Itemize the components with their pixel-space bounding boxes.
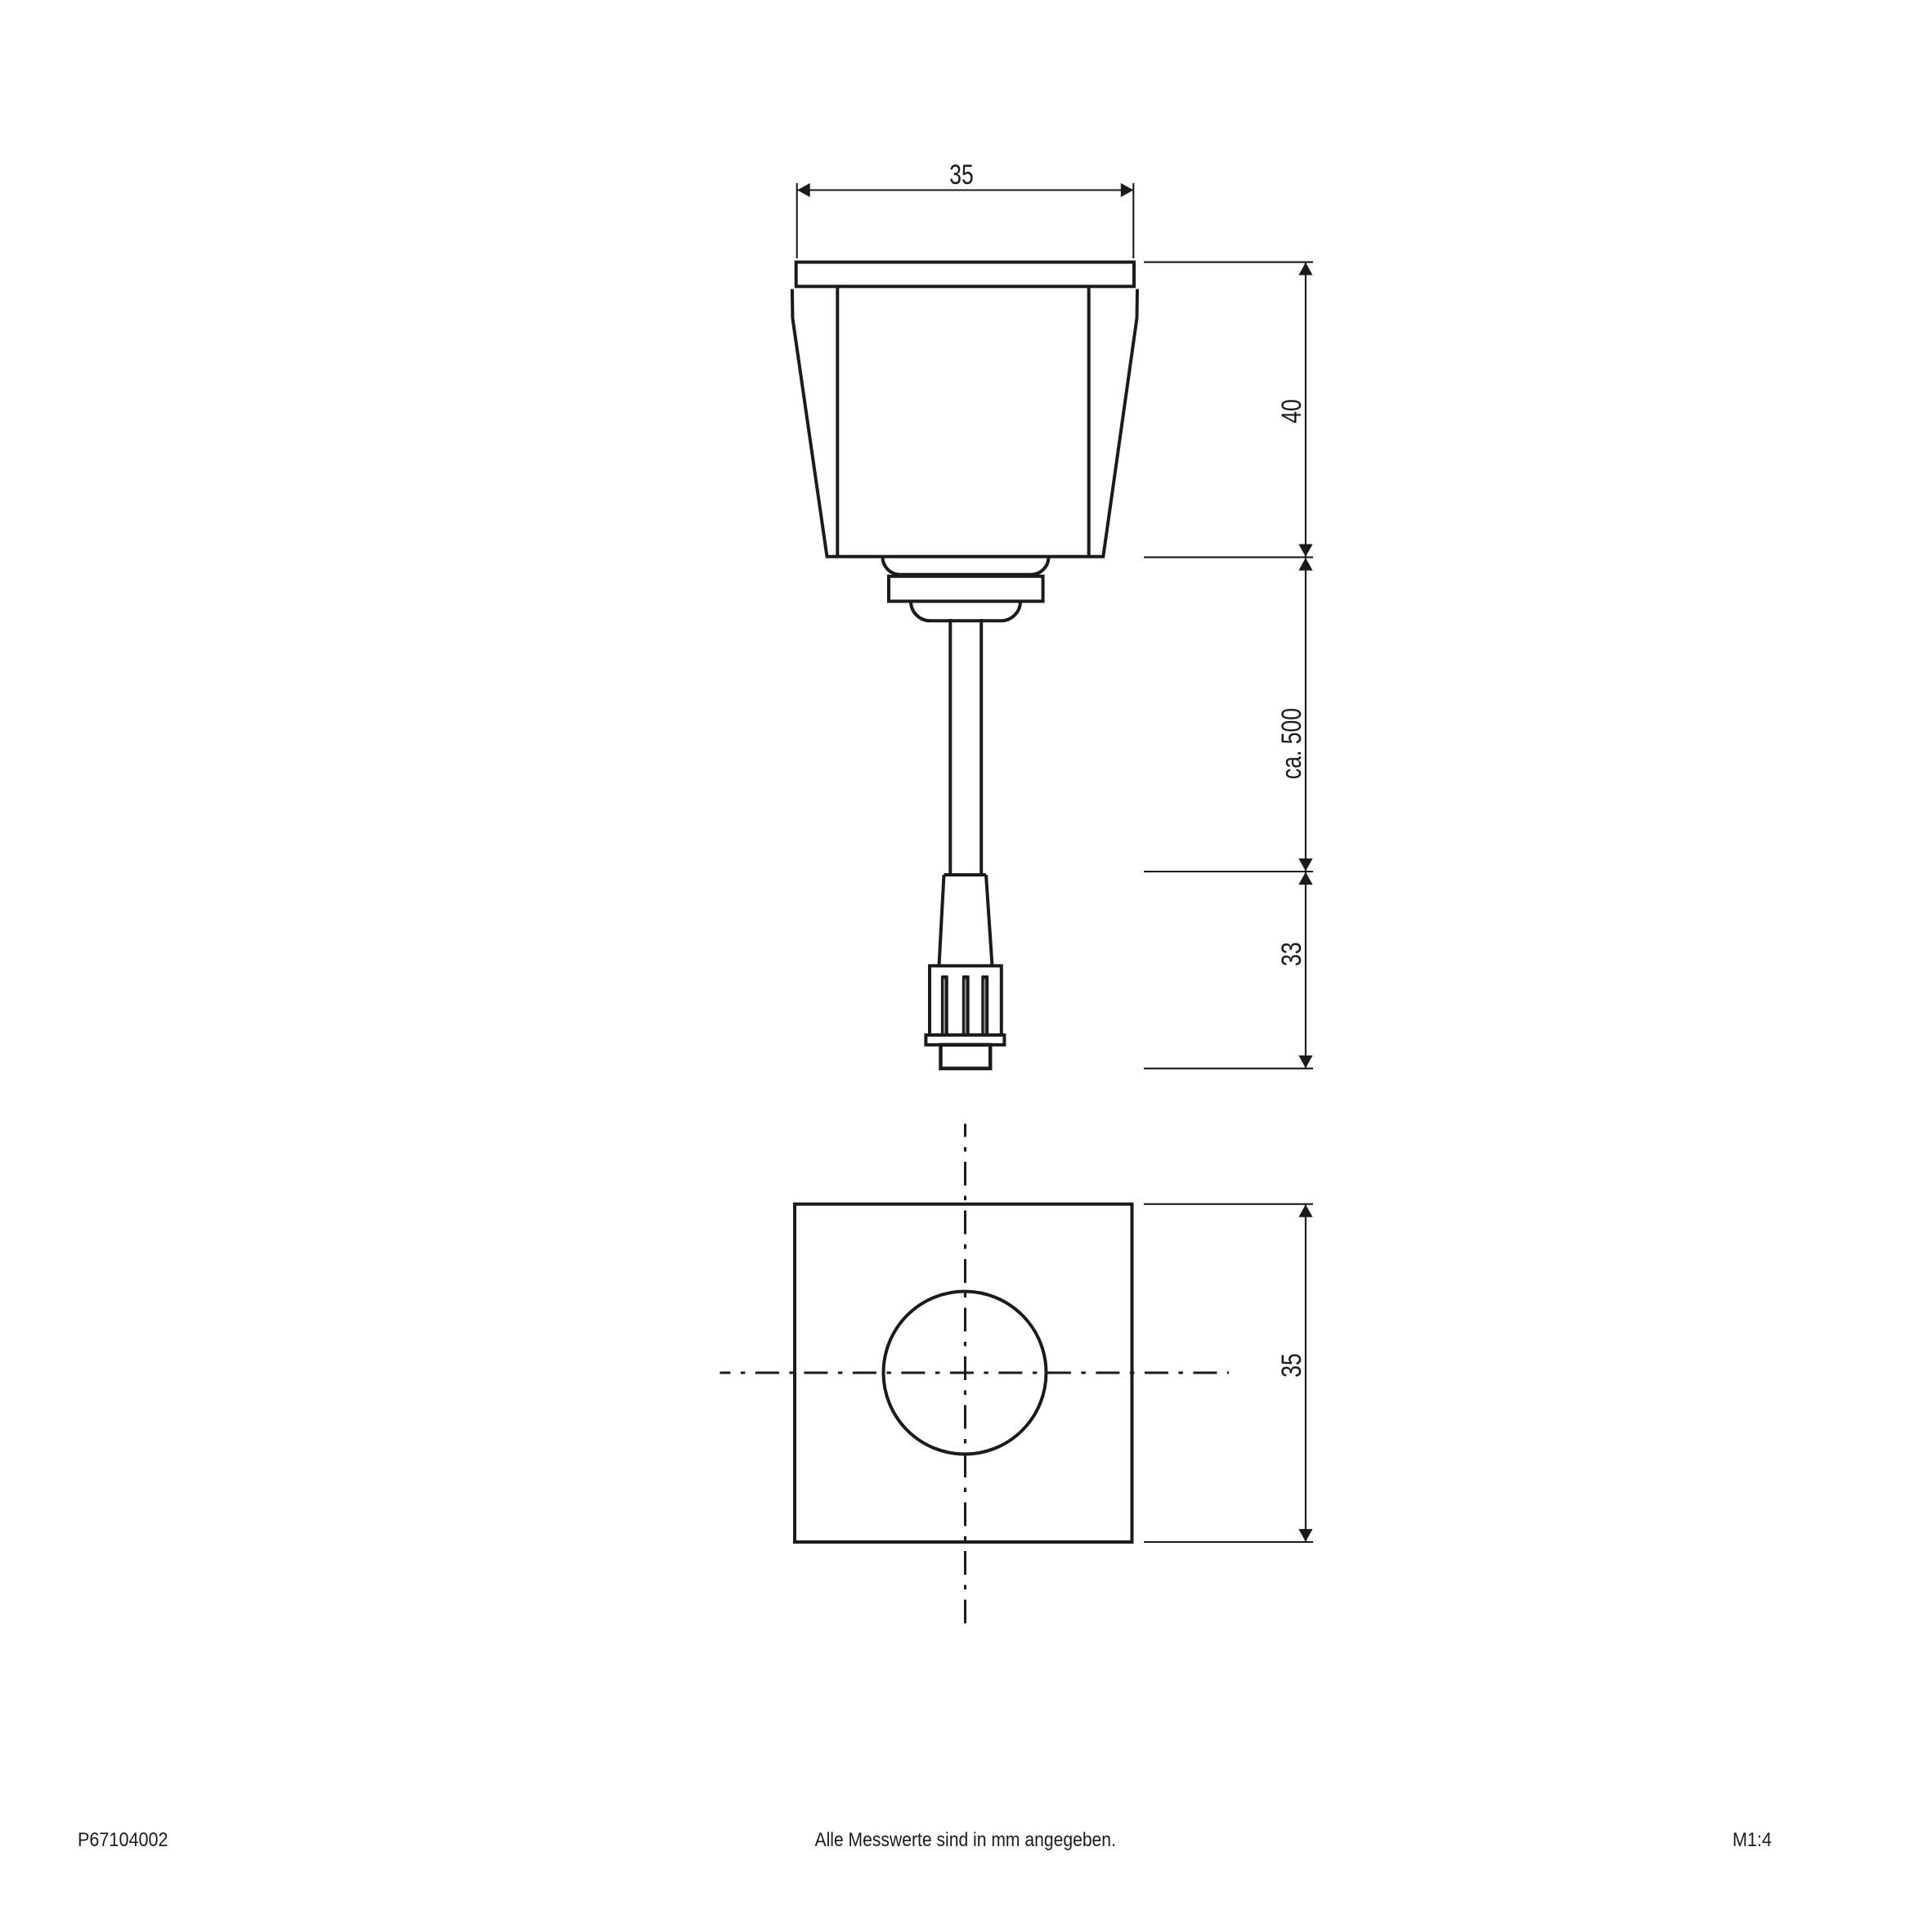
- svg-text:P67104002: P67104002: [78, 1828, 168, 1850]
- svg-text:40: 40: [1276, 399, 1307, 424]
- svg-text:35: 35: [1276, 1353, 1307, 1378]
- svg-text:35: 35: [949, 159, 974, 191]
- svg-text:M1:4: M1:4: [1733, 1828, 1772, 1850]
- svg-text:ca. 500: ca. 500: [1276, 708, 1307, 779]
- svg-text:33: 33: [1276, 942, 1307, 966]
- svg-text:Alle Messwerte sind in mm ange: Alle Messwerte sind in mm angegeben.: [814, 1829, 1115, 1851]
